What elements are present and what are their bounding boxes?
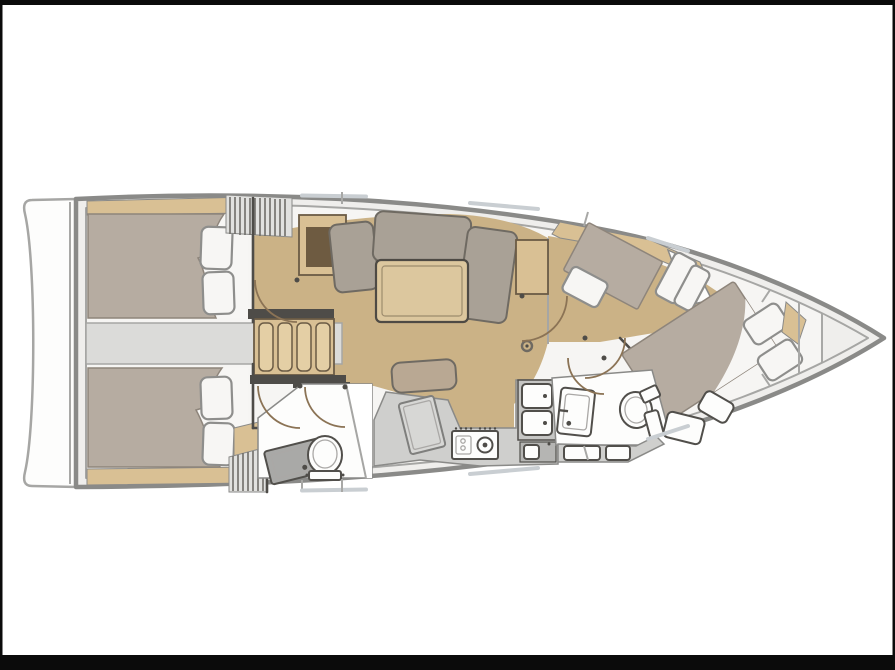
under-sink-hatch (524, 445, 539, 459)
door-hinge-1 (295, 278, 300, 283)
companionway-steps (248, 309, 350, 388)
locker-hatch-2 (606, 446, 630, 460)
door-hinge-5 (583, 336, 588, 341)
nav-station-seat (391, 359, 457, 393)
sink-drain-2 (543, 421, 547, 425)
settee-cushion-back (372, 211, 471, 268)
aft-cabin-lower-pillow-1 (200, 376, 232, 419)
stove-burner-center (483, 443, 488, 448)
cockpit-locker-upper (226, 195, 292, 237)
yacht-floor-plan (0, 0, 895, 670)
aft-cabin-lower-shelf (87, 467, 250, 485)
frame-top-bar (0, 0, 895, 5)
frame-bottom-bar (0, 655, 895, 670)
forward-head-sink (557, 387, 596, 436)
hull-window-bottom-1 (302, 490, 366, 491)
saloon-table (376, 260, 468, 322)
aft-head-toilet (306, 436, 345, 480)
sink-basin-1 (522, 384, 552, 408)
hull-window-top-1 (302, 196, 366, 197)
mast-foot-center (525, 344, 528, 347)
sink-drain-1 (543, 394, 547, 398)
step-slat-1 (259, 323, 273, 371)
galley-stove (452, 427, 498, 459)
aft-toilet-base (309, 471, 341, 480)
step-slat-2 (278, 323, 292, 371)
saloon-side-cabinet (516, 240, 548, 294)
companionway-sill-top (248, 309, 334, 319)
step-slat-3 (297, 323, 311, 371)
sink-basin-2 (522, 411, 552, 435)
forward-head-faucet (559, 410, 568, 411)
sink-fitting-dot (548, 443, 551, 446)
frame-left-edge (0, 0, 3, 670)
settee-cushion-left (329, 221, 380, 293)
locker-hatch-1 (564, 446, 600, 460)
door-hinge-4 (520, 294, 525, 299)
door-hinge-2 (298, 384, 303, 389)
step-slat-4 (316, 323, 330, 371)
door-hinge-3 (343, 385, 348, 390)
galley-sink-unit (518, 380, 558, 462)
louver-panel-upper (226, 195, 292, 237)
aft-cabin-upper-pillow-2 (202, 271, 234, 314)
door-hinge-6 (602, 356, 607, 361)
